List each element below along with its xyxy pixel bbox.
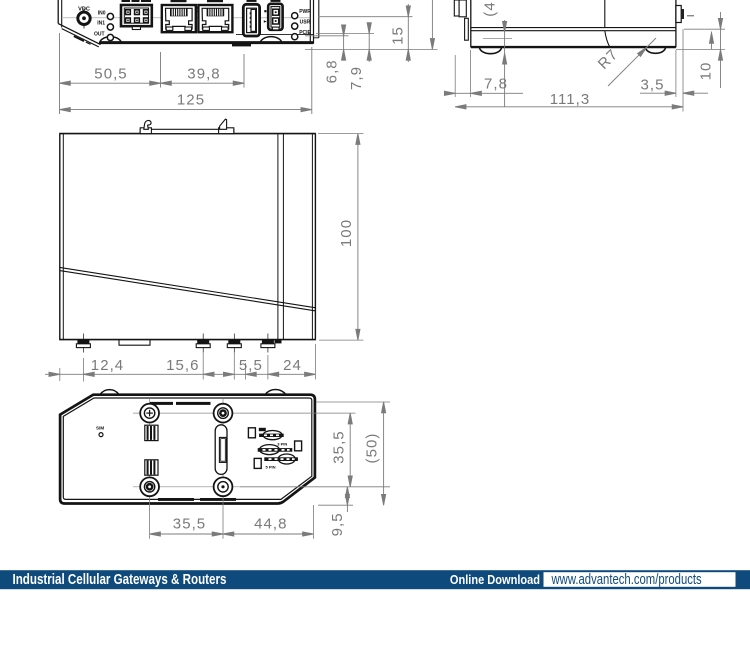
svg-text:PWR: PWR — [299, 9, 311, 15]
svg-text:6,8: 6,8 — [324, 59, 341, 83]
svg-text:3 PIN: 3 PIN — [277, 442, 287, 447]
svg-text:SIM: SIM — [96, 426, 104, 431]
svg-text:15,6: 15,6 — [166, 357, 199, 374]
svg-text:125: 125 — [177, 91, 205, 108]
svg-text:IN0: IN0 — [98, 11, 106, 17]
svg-text:7,9: 7,9 — [348, 66, 365, 90]
svg-text:www.advantech.com/products: www.advantech.com/products — [551, 571, 703, 588]
svg-text:35,5: 35,5 — [330, 430, 347, 463]
svg-text:Online Download: Online Download — [450, 572, 540, 587]
svg-text:15: 15 — [389, 26, 406, 45]
svg-text:111,3: 111,3 — [550, 91, 591, 108]
svg-text:35,5: 35,5 — [173, 515, 206, 532]
svg-text:100: 100 — [338, 219, 355, 247]
svg-text:50,5: 50,5 — [94, 65, 127, 82]
svg-text:39,8: 39,8 — [187, 65, 220, 82]
svg-text:Industrial Cellular Gateways &: Industrial Cellular Gateways & Routers — [13, 571, 227, 588]
svg-text:12,4: 12,4 — [91, 357, 124, 374]
svg-text:USR: USR — [300, 19, 311, 25]
svg-text:9,5: 9,5 — [329, 512, 346, 536]
svg-text:R7: R7 — [595, 46, 622, 73]
svg-text:3,5: 3,5 — [640, 77, 664, 94]
svg-text:(50): (50) — [364, 433, 381, 464]
svg-text:(4: (4 — [481, 1, 498, 16]
svg-text:5,5: 5,5 — [239, 357, 263, 374]
svg-text:44,8: 44,8 — [254, 515, 287, 532]
svg-text:OUT: OUT — [94, 31, 105, 37]
svg-text:24: 24 — [283, 357, 302, 374]
svg-text:7,8: 7,8 — [484, 76, 508, 93]
svg-text:10: 10 — [698, 62, 715, 81]
svg-text:PCIE: PCIE — [299, 30, 311, 36]
svg-text:5 PIN: 5 PIN — [266, 464, 276, 469]
svg-text:IN1: IN1 — [97, 21, 105, 27]
